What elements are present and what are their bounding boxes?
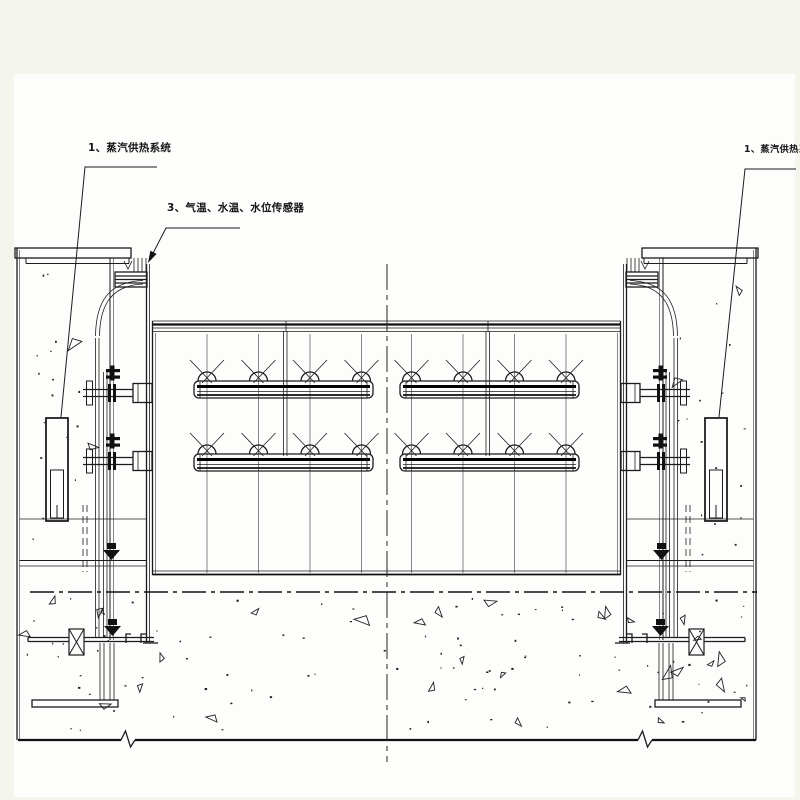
- label-steam-supply-left: 1、蒸汽供热系统: [88, 141, 171, 154]
- label-steam-supply-right: 1、蒸汽供热系统: [744, 143, 800, 155]
- drawing-canvas: 1、蒸汽供热系统 3、气温、水温、水位传感器 1、蒸汽供热系统: [0, 0, 800, 800]
- technical-drawing: 1、蒸汽供热系统 3、气温、水温、水位传感器 1、蒸汽供热系统: [0, 0, 800, 800]
- valve-symbol: [69, 629, 84, 655]
- label-sensors: 3、气温、水温、水位传感器: [167, 201, 304, 214]
